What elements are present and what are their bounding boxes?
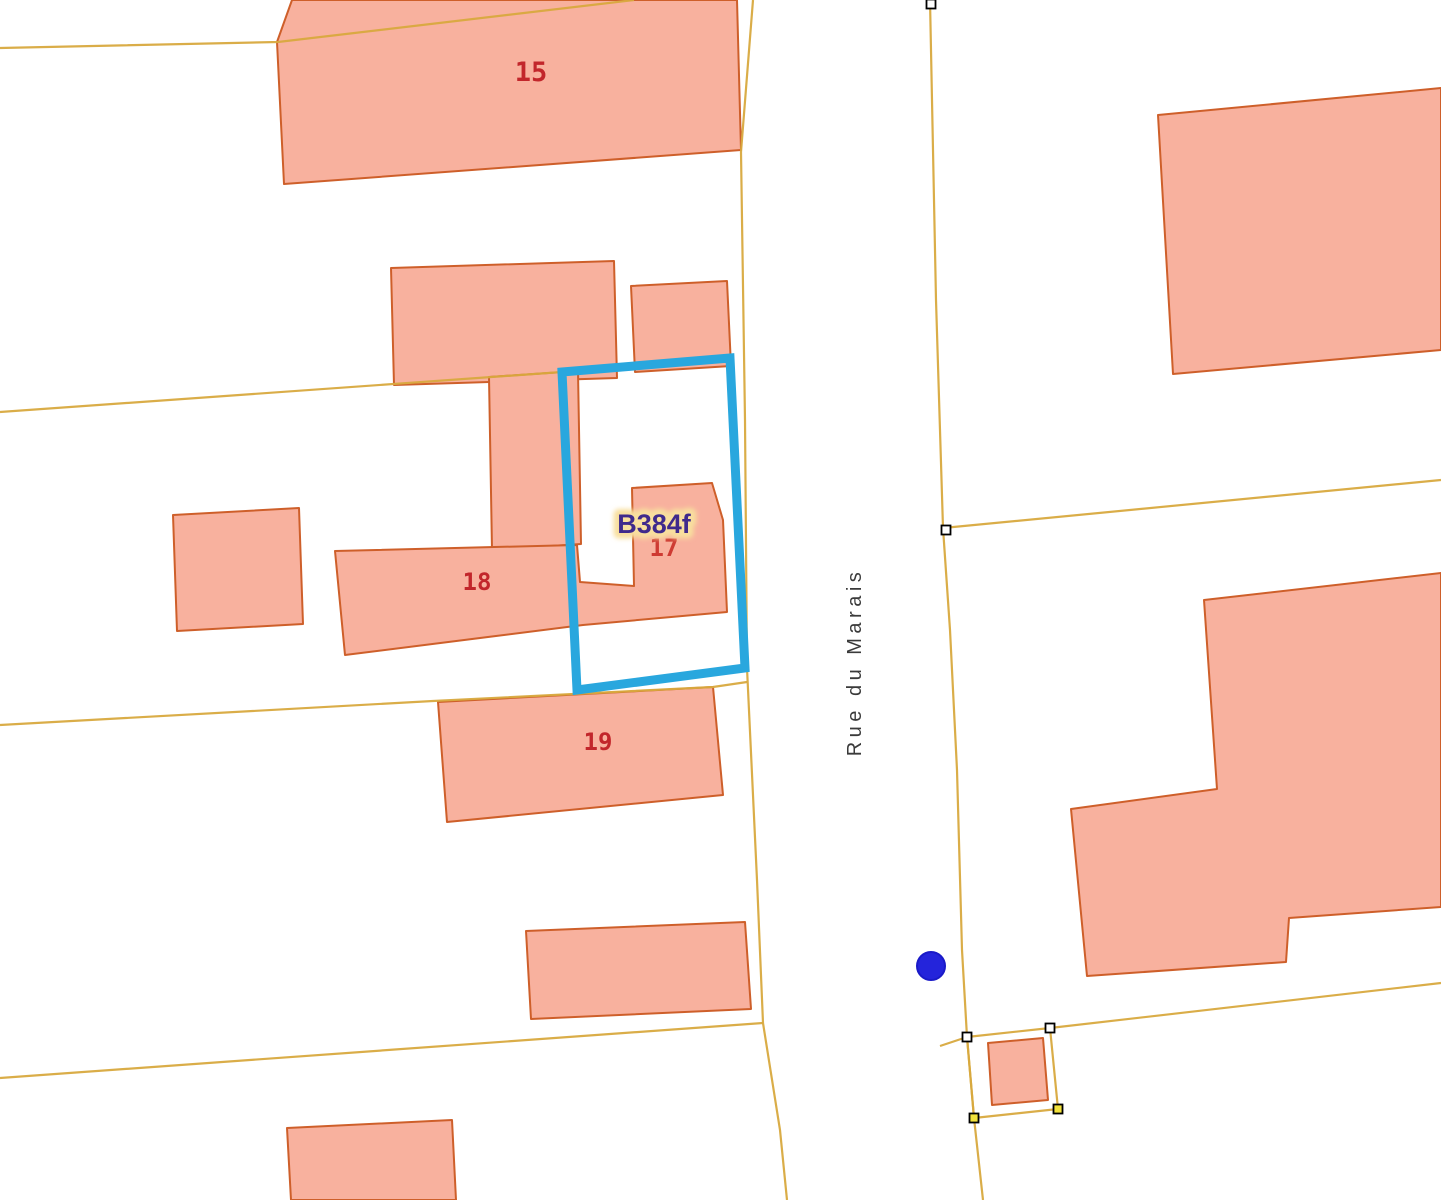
road-left-edge xyxy=(741,0,787,1200)
building-mid-right[interactable] xyxy=(1071,573,1441,976)
building-left-small[interactable] xyxy=(173,508,303,631)
road-right-edge xyxy=(930,0,983,1200)
street-name: Rue du Marais xyxy=(844,568,866,757)
building-bottom-left[interactable] xyxy=(287,1120,456,1200)
building-small-parcel[interactable] xyxy=(988,1038,1048,1105)
boundary-bottom-right xyxy=(1050,983,1441,1028)
boundary-branch-right xyxy=(943,480,1441,528)
boundary-left-4 xyxy=(0,1023,763,1078)
building-bottom-mid[interactable] xyxy=(526,922,751,1019)
vertex-handle[interactable] xyxy=(1054,1105,1063,1114)
building-15[interactable] xyxy=(277,0,741,184)
vertex-handle[interactable] xyxy=(1046,1024,1055,1033)
vertex-handle[interactable] xyxy=(963,1033,972,1042)
vertex-handle[interactable] xyxy=(942,526,951,535)
house-number-19: 19 xyxy=(584,728,613,756)
cadastral-map[interactable]: 15181917B384fB384fRue du Marais xyxy=(0,0,1441,1200)
vertex-handle[interactable] xyxy=(970,1114,979,1123)
house-number-15: 15 xyxy=(515,57,548,88)
building-top-right[interactable] xyxy=(1158,88,1441,374)
map-viewport[interactable]: 15181917B384fB384fRue du Marais xyxy=(0,0,1441,1200)
gps-point-marker xyxy=(917,952,945,980)
boundary-left-2 xyxy=(0,372,562,412)
vertex-handle[interactable] xyxy=(927,0,936,9)
map-layers: 15181917B384fB384fRue du Marais xyxy=(0,0,1441,1200)
house-number-18: 18 xyxy=(463,568,492,596)
parcel-id-label: B384f xyxy=(617,509,692,539)
building-19[interactable] xyxy=(438,687,723,822)
